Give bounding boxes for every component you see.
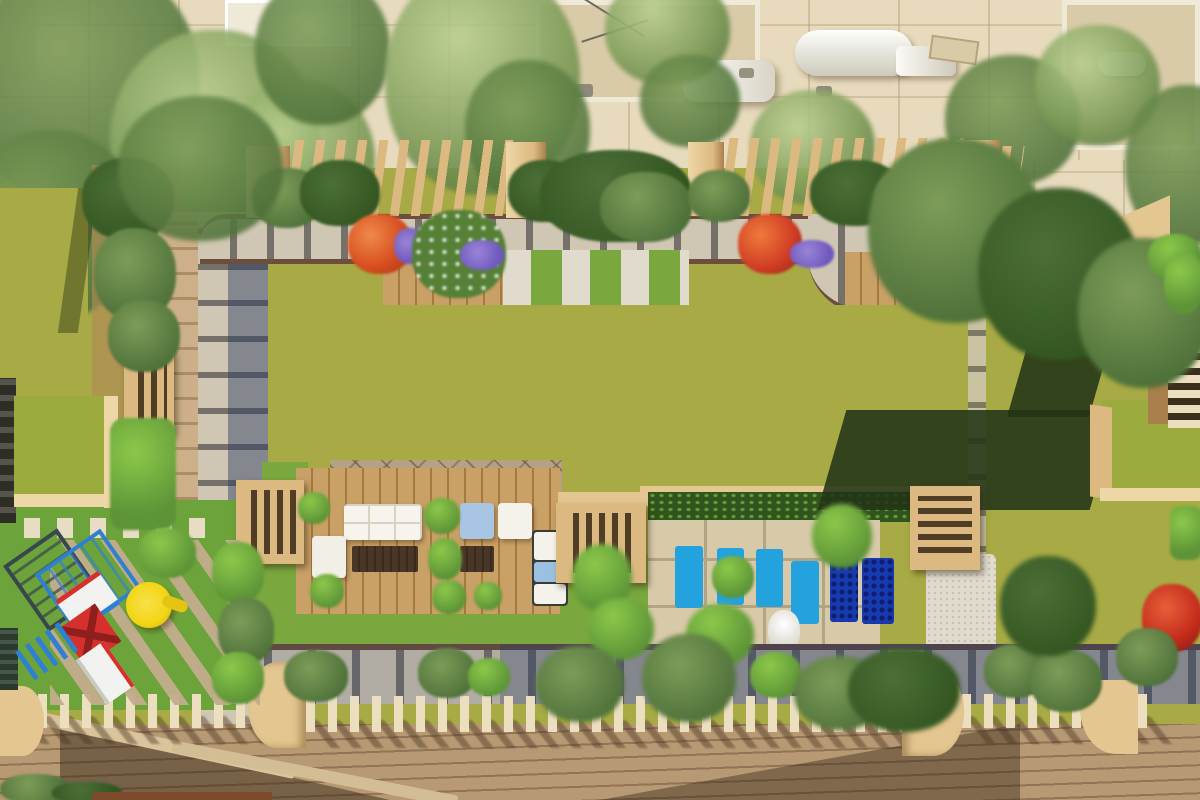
sun-lounger-blue bbox=[675, 546, 703, 608]
green-roof-cube bbox=[14, 396, 106, 496]
sofa-blue-cushion bbox=[460, 503, 494, 539]
shrub bbox=[688, 170, 750, 222]
fern-plant bbox=[432, 580, 466, 614]
sun-lounger-shaded bbox=[862, 558, 894, 624]
shrub bbox=[468, 658, 510, 696]
tree-canopy bbox=[640, 55, 740, 147]
overhanging-tree bbox=[812, 504, 872, 568]
fern-plant bbox=[310, 574, 344, 608]
shrub bbox=[600, 172, 692, 242]
sun-lounger-blue bbox=[756, 549, 783, 607]
flower-bush-purple bbox=[790, 240, 834, 268]
chaise-cushion-white bbox=[534, 584, 566, 604]
soil-strip bbox=[92, 792, 272, 800]
shrub bbox=[108, 300, 180, 372]
shrub bbox=[284, 650, 348, 702]
cube-wall bbox=[1100, 488, 1200, 501]
sofa-white bbox=[344, 504, 422, 540]
coffee-table-dark bbox=[460, 546, 494, 572]
fern-plant bbox=[428, 538, 462, 580]
fern-plant bbox=[298, 492, 330, 524]
cube-wall bbox=[14, 494, 116, 507]
lounger-white bbox=[312, 536, 346, 578]
climber-trellis bbox=[110, 418, 176, 530]
flower-bush-red bbox=[738, 214, 802, 274]
sofa-white-cushion bbox=[498, 503, 532, 539]
fern-plant bbox=[474, 582, 502, 610]
tree-canopy bbox=[536, 646, 624, 722]
louver-box-slats bbox=[918, 496, 972, 560]
large-bush bbox=[848, 648, 960, 732]
shrub bbox=[212, 652, 264, 704]
shrub bbox=[138, 528, 196, 578]
palm-plant bbox=[1164, 252, 1200, 314]
coffee-table-dark bbox=[352, 546, 418, 572]
shrub bbox=[1116, 628, 1178, 686]
flower-bush-purple bbox=[460, 240, 504, 270]
curved-parapet bbox=[0, 686, 44, 756]
rooftop-garden-aerial-render bbox=[0, 0, 1200, 800]
hedge-right-edge bbox=[1170, 506, 1200, 560]
shrub bbox=[212, 542, 264, 604]
small-tree bbox=[712, 556, 754, 598]
fern-plant bbox=[424, 498, 460, 534]
playground-fence-dark bbox=[0, 628, 18, 690]
stepping-stone bbox=[189, 518, 205, 538]
cube-wall bbox=[1090, 404, 1112, 499]
shrub bbox=[1030, 650, 1102, 712]
shaded-tree bbox=[1000, 556, 1096, 656]
gravel-grass-strips bbox=[503, 250, 689, 312]
tree-canopy bbox=[642, 634, 736, 722]
street-car bbox=[739, 68, 754, 78]
tree-canopy bbox=[118, 96, 283, 241]
stepping-stone bbox=[24, 518, 40, 538]
